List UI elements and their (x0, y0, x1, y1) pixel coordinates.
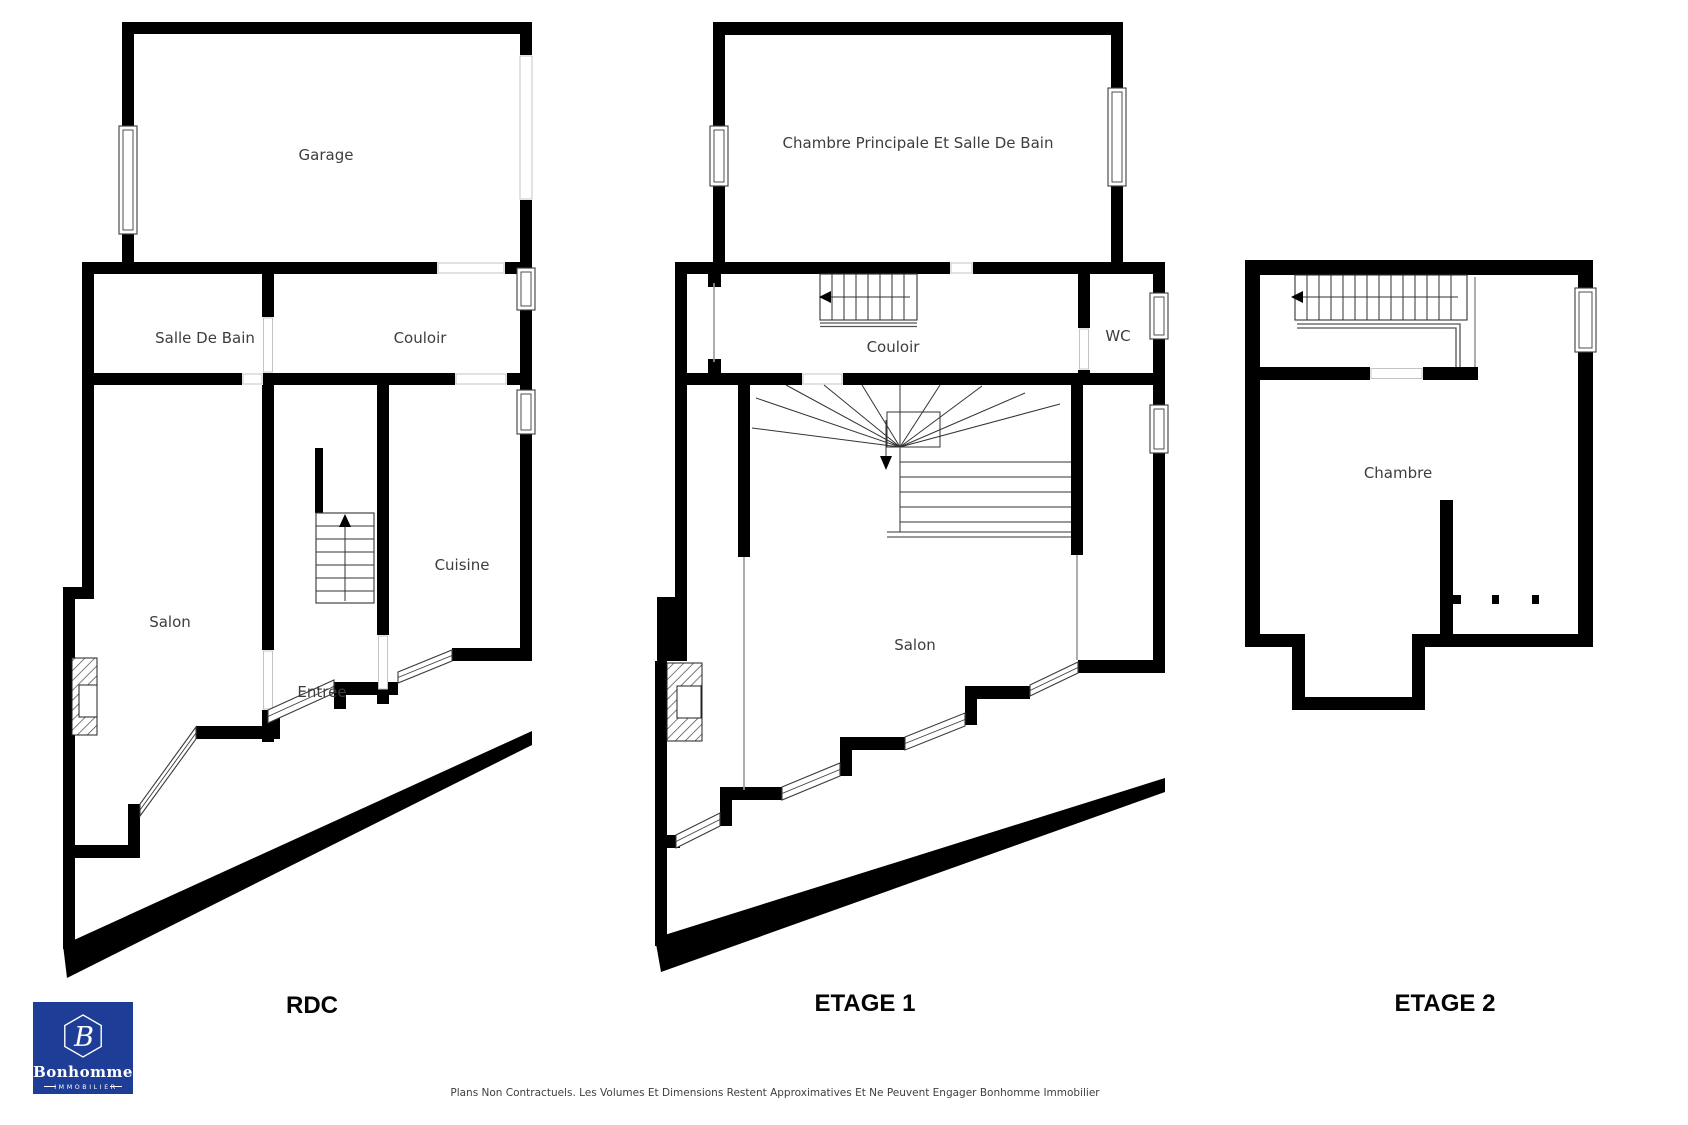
floor-title-etage1: ETAGE 1 (815, 990, 916, 1017)
room-label-entree: Entrée (297, 683, 346, 701)
room-label-wc: WC (1105, 327, 1130, 345)
room-label-couloir-etage1: Couloir (867, 338, 921, 356)
room-label-chambre-principale: Chambre Principale Et Salle De Bain (783, 134, 1054, 152)
floor-plan-sheet: Garage Salle De Bain Couloir Salon Entré… (0, 0, 1688, 1125)
rdc-windows (119, 126, 535, 816)
etage2-door-opening (1371, 369, 1422, 379)
room-label-couloir-rdc: Couloir (394, 329, 448, 347)
logo-brand-name: Bonhomme (33, 1063, 133, 1081)
room-label-cuisine: Cuisine (435, 556, 490, 574)
etage1-winder-staircase (752, 385, 1071, 537)
logo-monogram: B (73, 1022, 94, 1053)
room-label-salon-rdc: Salon (149, 613, 191, 631)
rdc-staircase (316, 513, 374, 603)
floorplan-rdc: Garage Salle De Bain Couloir Salon Entré… (63, 22, 535, 978)
logo-subtitle: IMMOBILIER (54, 1084, 118, 1091)
floor-title-rdc: RDC (286, 992, 338, 1019)
etage1-walls (655, 22, 1165, 972)
floorplan-etage1: Chambre Principale Et Salle De Bain Coul… (655, 22, 1168, 972)
room-label-salle-de-bain: Salle De Bain (155, 329, 255, 347)
floor-title-etage2: ETAGE 2 (1395, 990, 1496, 1017)
room-label-salon-etage1: Salon (894, 636, 936, 654)
etage1-fireplace (667, 663, 702, 741)
stairs-down-arrow-icon (880, 456, 892, 470)
agency-logo: B Bonhomme IMMOBILIER (33, 1002, 133, 1094)
etage1-corridor-staircase (819, 274, 917, 327)
room-label-chambre: Chambre (1364, 464, 1432, 482)
etage2-staircase (1291, 275, 1467, 367)
rdc-fireplace (72, 658, 97, 735)
floor-plans-canvas: Garage Salle De Bain Couloir Salon Entré… (0, 0, 1688, 1125)
room-label-garage: Garage (299, 146, 354, 164)
disclaimer-text: Plans Non Contractuels. Les Volumes Et D… (450, 1087, 1100, 1099)
etage2-windows (1575, 288, 1596, 352)
floorplan-etage2: Chambre (1245, 260, 1596, 710)
